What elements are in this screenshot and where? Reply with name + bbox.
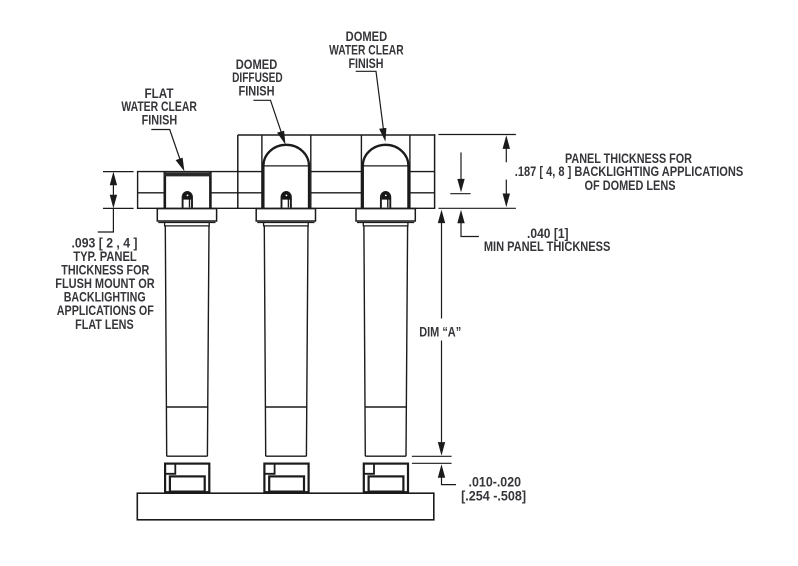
svg-text:OF DOMED LENS: OF DOMED LENS — [585, 178, 676, 194]
svg-text:DIM “A”: DIM “A” — [419, 324, 461, 339]
svg-text:FLAT LENS: FLAT LENS — [75, 317, 134, 332]
svg-text:.010-.020: .010-.020 — [469, 475, 522, 490]
svg-text:MIN PANEL THICKNESS: MIN PANEL THICKNESS — [484, 239, 611, 254]
svg-text:FINISH: FINISH — [239, 84, 275, 99]
svg-text:FINISH: FINISH — [142, 113, 178, 128]
svg-text:[.254 -.508]: [.254 -.508] — [461, 489, 526, 504]
svg-text:FINISH: FINISH — [349, 56, 384, 71]
